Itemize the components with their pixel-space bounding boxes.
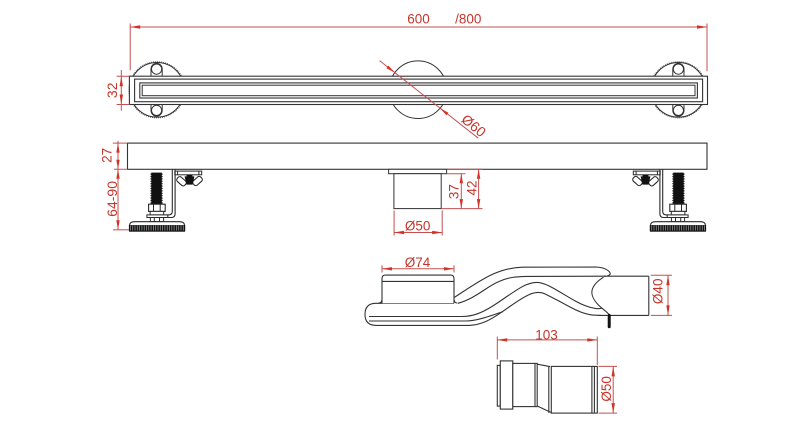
svg-text:Ø50: Ø50 <box>405 218 431 233</box>
svg-text:27: 27 <box>100 148 115 163</box>
svg-text:Ø74: Ø74 <box>405 255 431 270</box>
svg-text:600: 600 <box>407 12 430 27</box>
svg-text:Ø50: Ø50 <box>599 376 614 402</box>
svg-text:/800: /800 <box>455 12 481 27</box>
svg-text:37: 37 <box>446 184 461 199</box>
svg-text:Ø60: Ø60 <box>458 111 489 140</box>
svg-text:Ø40: Ø40 <box>651 279 666 305</box>
svg-text:42: 42 <box>465 180 480 195</box>
svg-text:32: 32 <box>104 82 120 98</box>
svg-text:103: 103 <box>535 328 558 343</box>
svg-text:64-90: 64-90 <box>104 181 120 217</box>
